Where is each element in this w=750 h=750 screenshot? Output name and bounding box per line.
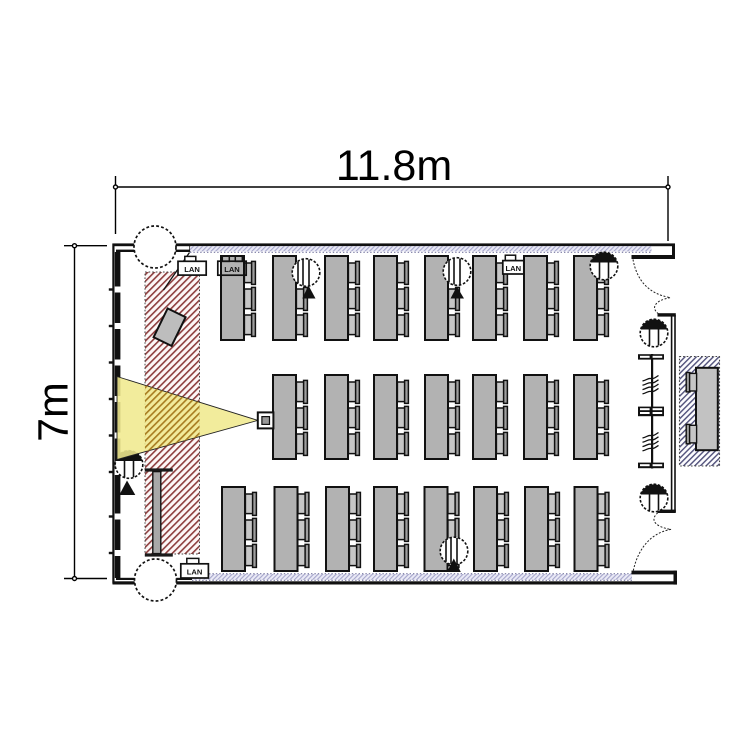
svg-text:LAN: LAN [224,265,240,274]
svg-text:LAN: LAN [505,264,521,273]
svg-text:11.8m: 11.8m [336,142,452,190]
svg-text:LAN: LAN [187,568,203,577]
svg-text:7m: 7m [30,382,78,442]
svg-text:LAN: LAN [184,265,200,274]
